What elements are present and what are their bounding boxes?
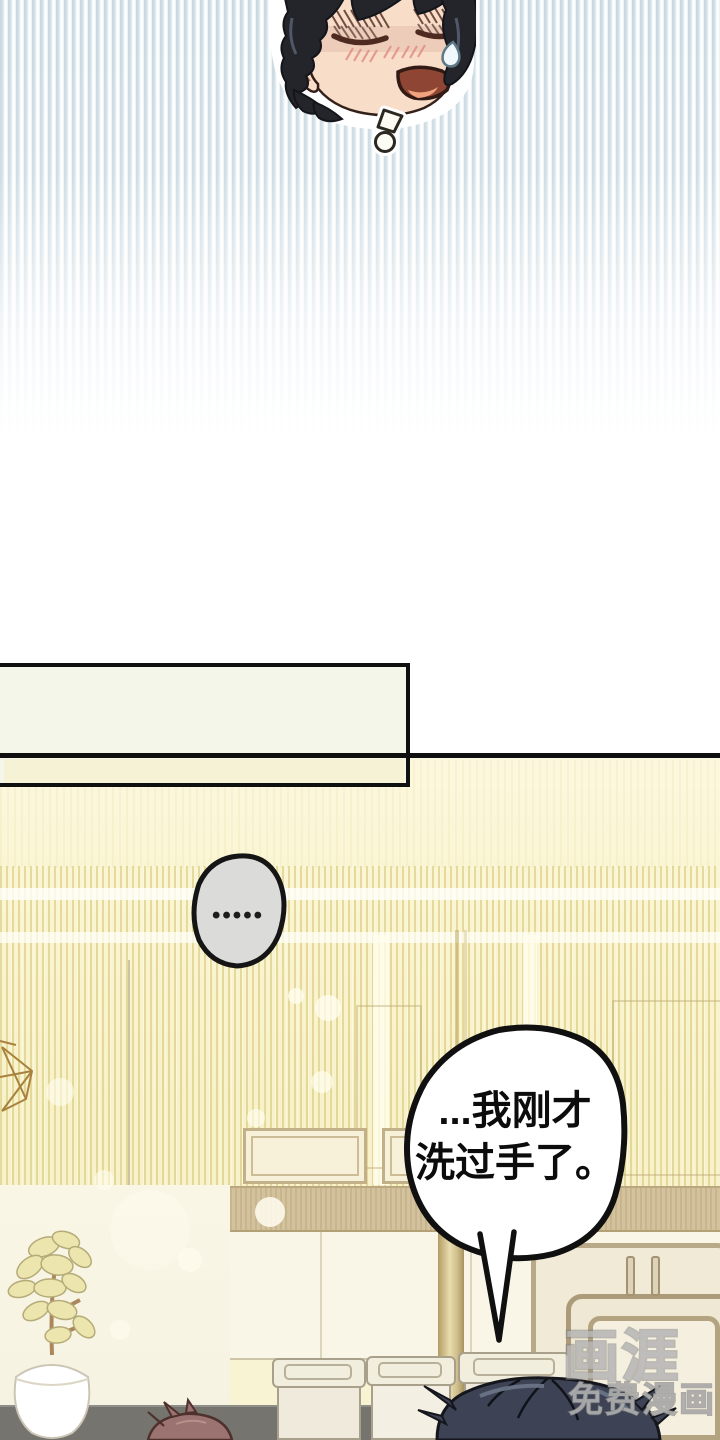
speech-bubble-text: ...我刚才 洗过手了。 — [400, 1085, 630, 1189]
watermark-label: 免费漫画 — [568, 1372, 720, 1423]
plant-pot — [15, 1365, 90, 1438]
narration-box-tint — [4, 759, 404, 783]
thought-bubble-dots: ••••• — [193, 902, 283, 930]
bokeh-lights — [46, 988, 341, 1340]
character-head-secondary — [148, 1400, 232, 1440]
speech-line-1: ...我刚才 — [400, 1085, 630, 1137]
panel-border-line — [0, 753, 720, 758]
pendant-lamp-icon — [0, 1041, 32, 1111]
comic-page: ••••• ...我刚才 洗过手了。 画涯 免费漫画 — [0, 0, 720, 1440]
potted-plant — [6, 1228, 98, 1438]
speech-line-2: 洗过手了。 — [400, 1137, 630, 1189]
